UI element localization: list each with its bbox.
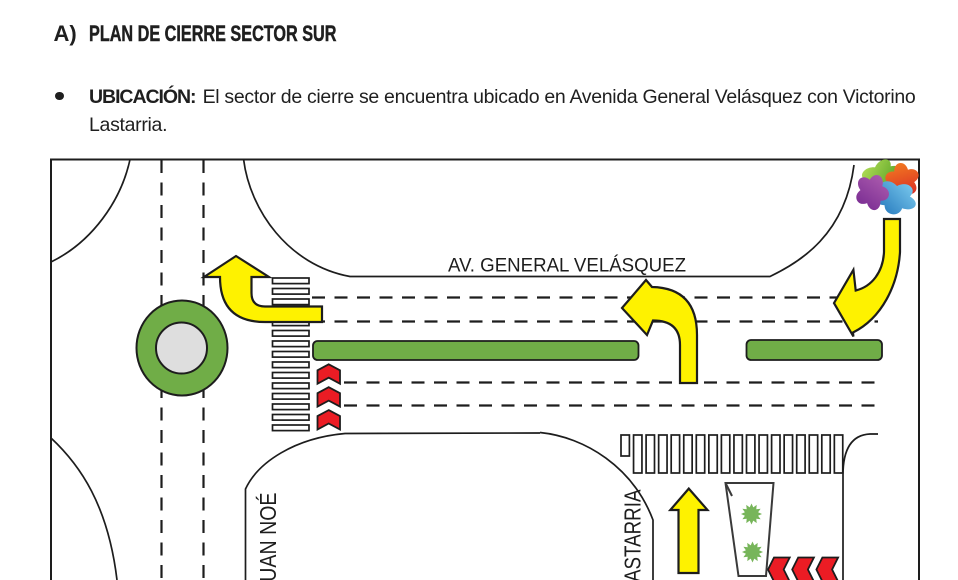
svg-text:JUAN NOÉ: JUAN NOÉ xyxy=(255,493,281,580)
svg-text:AV. GENERAL VELÁSQUEZ: AV. GENERAL VELÁSQUEZ xyxy=(448,256,686,277)
svg-text:LASTARRIA: LASTARRIA xyxy=(620,489,646,580)
